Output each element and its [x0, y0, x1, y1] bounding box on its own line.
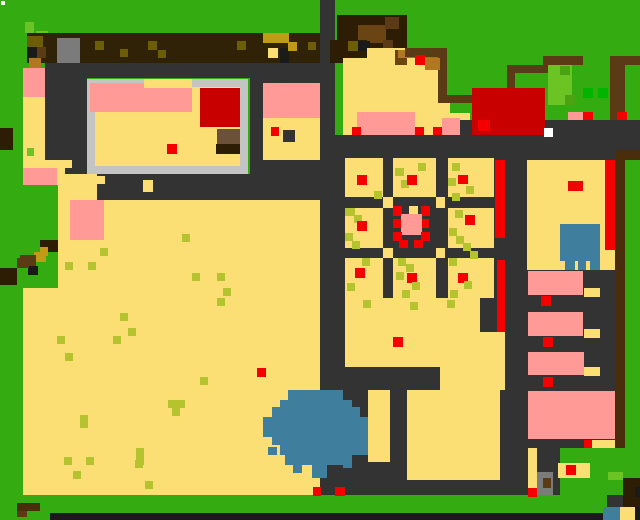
rooms-right	[396, 272, 404, 280]
top-right	[415, 127, 424, 135]
pond	[293, 465, 302, 473]
rooms-right	[605, 250, 615, 270]
field	[97, 174, 320, 200]
field	[70, 200, 104, 240]
rooms-right	[449, 228, 457, 236]
beds-wing	[528, 312, 583, 336]
rooms-right	[458, 175, 468, 184]
top-right	[507, 65, 543, 73]
rooms-right	[452, 193, 460, 201]
pond	[360, 430, 368, 445]
grass-accents	[1, 1, 5, 5]
pond	[312, 465, 327, 478]
rooms-right	[421, 206, 430, 216]
field	[0, 268, 17, 285]
left-yard	[23, 168, 57, 185]
field	[257, 368, 266, 377]
top-bar	[27, 47, 37, 57]
rooms-right	[368, 390, 390, 462]
rooms-right	[402, 290, 410, 298]
rooms-right	[560, 224, 600, 261]
top-right	[415, 55, 425, 65]
top-right	[560, 66, 570, 75]
top-bar	[288, 42, 297, 51]
rooms-right	[412, 282, 420, 290]
top-right	[357, 112, 415, 135]
rooms-right	[568, 181, 583, 191]
rooms-right	[362, 258, 370, 266]
left-yard	[23, 185, 58, 243]
house-room	[216, 144, 240, 154]
pond	[263, 417, 368, 437]
rooms-right	[495, 160, 505, 238]
top-bar	[120, 49, 128, 57]
rooms-right	[374, 191, 382, 199]
rooms-right	[401, 214, 422, 235]
rooms-right	[436, 248, 445, 258]
pond	[343, 455, 352, 468]
bottom-strip	[50, 513, 607, 520]
rooms-right	[414, 240, 423, 248]
pond	[288, 390, 343, 400]
beds-wing	[592, 440, 615, 448]
bottom-strip	[635, 507, 640, 520]
field	[168, 400, 185, 408]
rooms-right	[455, 210, 463, 218]
pond	[285, 455, 352, 465]
top-bar	[148, 41, 157, 50]
top-right	[320, 135, 640, 160]
top-right	[583, 112, 593, 120]
bottom-strip	[635, 487, 640, 497]
rooms-right	[355, 268, 365, 278]
field	[182, 234, 190, 242]
left-yard	[23, 160, 72, 168]
top-bar	[158, 50, 166, 58]
rooms-right	[383, 197, 393, 208]
top-bar	[57, 38, 80, 63]
bottom-strip	[620, 507, 635, 520]
top-right	[583, 88, 593, 98]
house-room	[167, 144, 177, 154]
field	[57, 336, 65, 344]
beds-wing	[528, 391, 615, 439]
bottom-strip	[543, 478, 551, 488]
rooms-right	[398, 258, 406, 266]
rooms-right	[464, 281, 472, 289]
top-bar	[95, 41, 104, 50]
rooms-right	[399, 240, 408, 248]
field	[135, 460, 143, 468]
beds-wing	[541, 296, 551, 306]
pond	[272, 437, 368, 445]
rooms-right	[466, 186, 474, 194]
top-right	[433, 127, 442, 135]
rooms-right	[393, 337, 403, 347]
rooms-right	[363, 300, 371, 308]
rooms-right	[383, 248, 393, 258]
top-right	[565, 95, 575, 105]
rooms-right	[565, 261, 575, 270]
bottom-strip	[335, 487, 345, 496]
rooms-right	[421, 219, 429, 228]
beds-wing	[584, 288, 600, 297]
field	[17, 258, 29, 268]
house-walls	[271, 127, 279, 136]
field	[100, 248, 108, 256]
rooms-right	[406, 264, 414, 272]
house-walls	[263, 83, 320, 118]
rooms-right	[578, 261, 586, 270]
rooms-right	[357, 175, 367, 185]
rooms-right	[357, 221, 367, 231]
house-room	[200, 88, 240, 127]
rooms-right	[345, 332, 505, 367]
rooms-right	[352, 241, 360, 249]
beds-wing	[543, 337, 553, 347]
rooms-right	[450, 290, 458, 298]
field	[28, 266, 38, 275]
house-room	[217, 129, 240, 145]
rooms-right	[447, 300, 455, 308]
field	[192, 273, 200, 281]
rooms-right	[436, 197, 445, 208]
rooms-right	[452, 163, 460, 171]
bottom-strip	[603, 507, 620, 520]
rooms-right	[418, 163, 426, 171]
bottom-strip	[313, 487, 321, 496]
rooms-right	[463, 243, 471, 251]
rooms-right	[448, 178, 456, 186]
field	[217, 273, 225, 281]
beds-wing	[615, 438, 625, 448]
rooms-right	[410, 302, 418, 310]
rooms-right	[395, 168, 404, 176]
bottom-strip	[608, 472, 623, 480]
bottom-strip	[17, 503, 40, 511]
field	[217, 298, 225, 306]
rooms-right	[345, 233, 353, 241]
top-right	[320, 0, 335, 135]
rooms-right	[347, 283, 355, 291]
field	[86, 457, 94, 465]
rooms-right	[440, 367, 505, 390]
house-walls	[45, 63, 87, 160]
grass-accents	[25, 22, 34, 33]
pond	[280, 445, 368, 455]
house-walls	[283, 130, 295, 142]
field	[128, 328, 136, 336]
rooms-right	[497, 260, 505, 332]
beds-wing	[625, 160, 640, 478]
field	[73, 471, 81, 479]
game-map[interactable]	[0, 0, 640, 520]
field	[223, 288, 231, 296]
field	[120, 313, 128, 321]
top-bar	[27, 36, 43, 47]
top-bar	[308, 42, 316, 50]
rooms-right	[470, 251, 478, 259]
rooms-right	[590, 261, 600, 270]
top-right	[385, 17, 399, 29]
top-right	[425, 58, 440, 70]
field	[64, 457, 72, 465]
pond	[280, 400, 352, 407]
field	[23, 288, 58, 497]
beds-wing	[584, 440, 592, 448]
field	[58, 174, 97, 200]
top-bar	[263, 33, 289, 43]
left-yard	[23, 68, 45, 97]
top-right	[568, 112, 583, 120]
pond	[272, 407, 360, 417]
field	[200, 377, 208, 385]
rooms-right	[605, 160, 615, 250]
top-bar	[237, 41, 246, 50]
top-right	[598, 88, 608, 98]
bottom-strip	[528, 448, 537, 488]
beds-wing	[543, 377, 553, 387]
field	[65, 262, 73, 270]
field	[65, 353, 73, 361]
house-room	[144, 79, 192, 88]
field	[113, 336, 121, 344]
rooms-right	[393, 219, 401, 228]
field	[143, 180, 153, 192]
top-right	[610, 56, 640, 65]
bottom-strip	[17, 511, 27, 517]
rooms-right	[407, 390, 500, 480]
bottom-strip	[528, 488, 537, 497]
pond	[268, 447, 277, 455]
beds-wing	[528, 271, 583, 295]
top-right	[352, 127, 361, 135]
beds-wing	[528, 352, 584, 375]
beds-wing	[615, 150, 625, 438]
field	[88, 262, 96, 270]
top-bar	[37, 47, 46, 58]
beds-wing	[584, 367, 600, 376]
top-right	[544, 128, 553, 137]
top-right	[348, 41, 358, 51]
top-right	[478, 120, 490, 131]
top-bar	[268, 48, 278, 58]
left-yard	[27, 148, 34, 156]
field	[145, 481, 153, 489]
bottom-strip	[23, 495, 607, 515]
rooms-right	[407, 175, 417, 185]
field	[80, 415, 88, 428]
bottom-strip	[566, 465, 576, 475]
rooms-right	[465, 215, 475, 225]
top-right	[442, 118, 460, 135]
left-yard	[0, 128, 13, 150]
beds-wing	[584, 329, 600, 338]
field	[96, 176, 105, 184]
field	[172, 408, 180, 416]
rooms-right	[449, 258, 457, 266]
